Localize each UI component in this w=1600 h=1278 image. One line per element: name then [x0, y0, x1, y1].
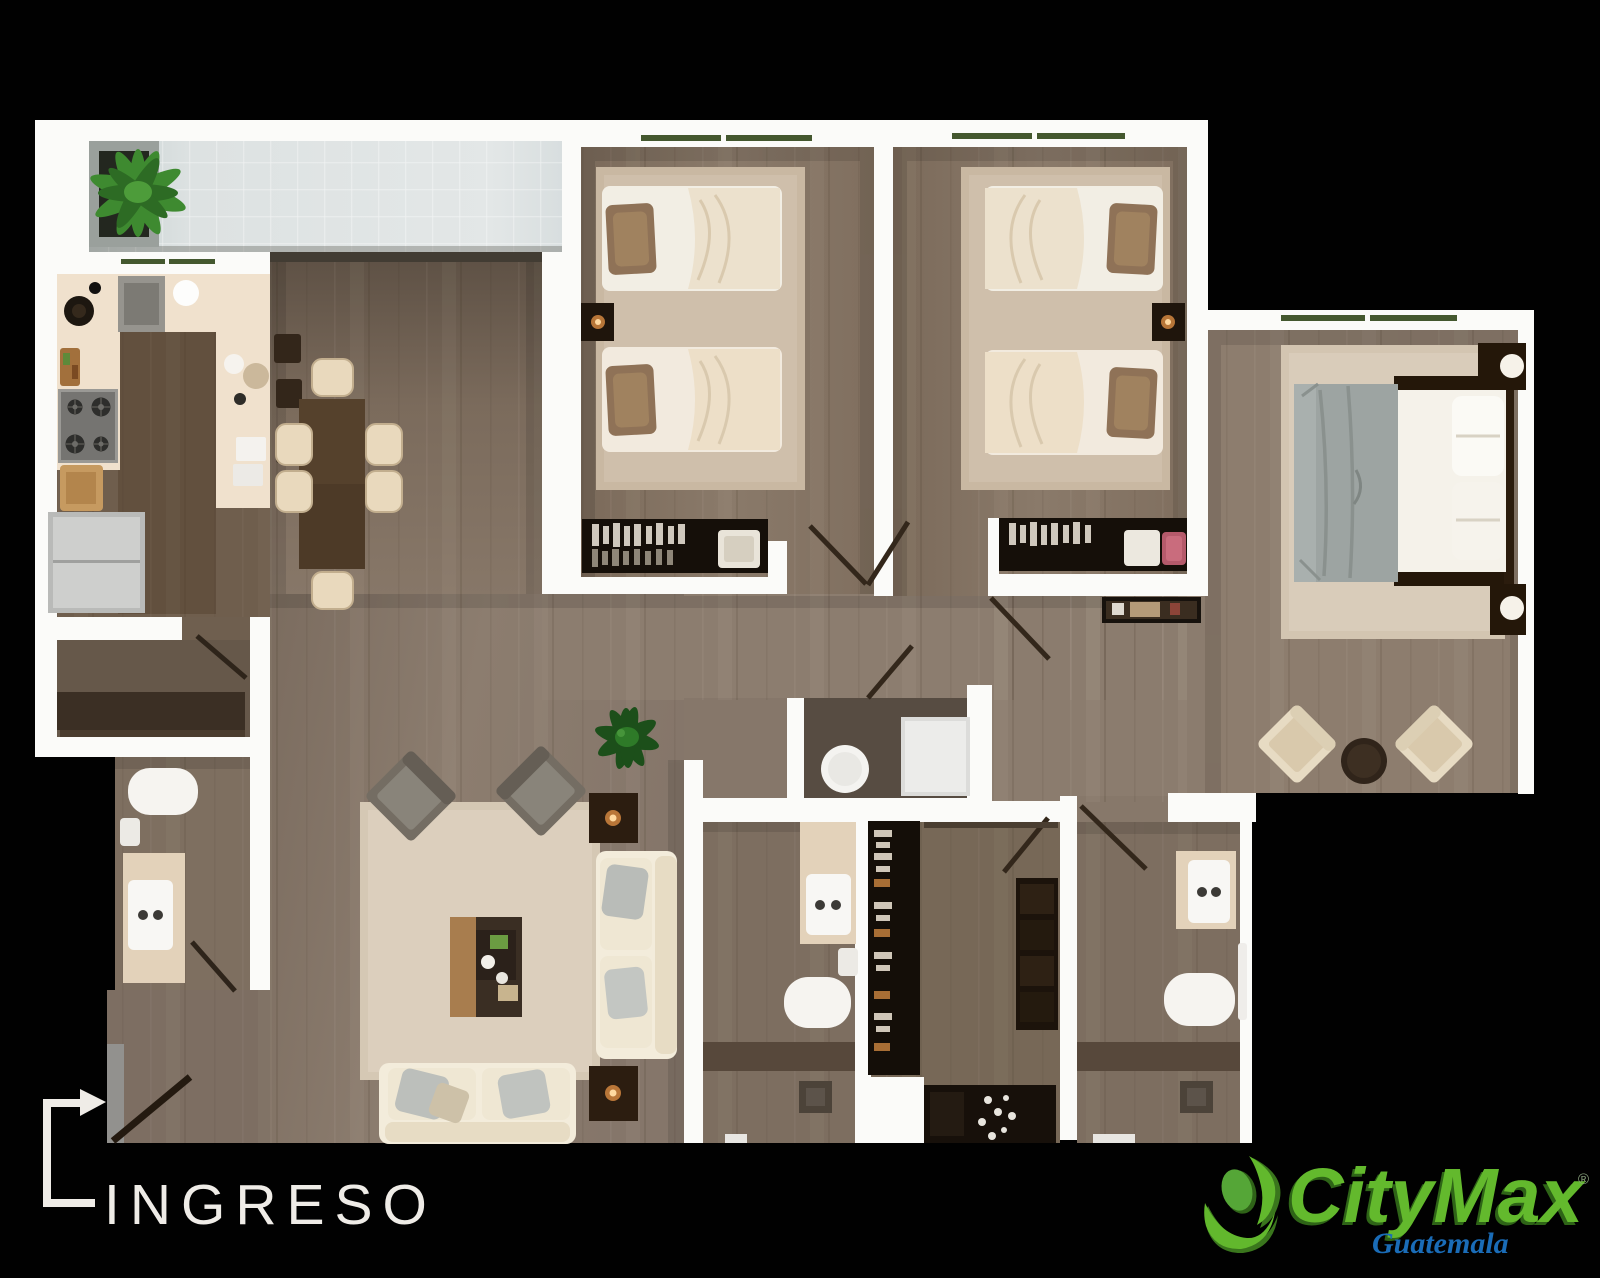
svg-text:Guatemala: Guatemala [1372, 1227, 1509, 1260]
svg-text:INGRESO: INGRESO [104, 1173, 437, 1237]
svg-text:®: ® [1578, 1171, 1589, 1188]
